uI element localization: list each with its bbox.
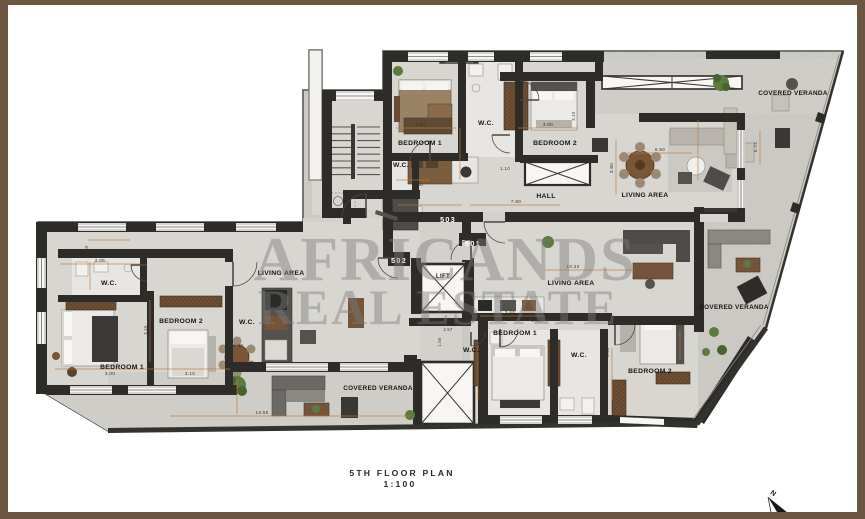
svg-text:COVERED VERANDA: COVERED VERANDA bbox=[343, 385, 413, 392]
svg-text:COVERED VERANDA: COVERED VERANDA bbox=[699, 304, 769, 311]
svg-text:W.C.: W.C. bbox=[101, 280, 117, 287]
svg-text:3.10: 3.10 bbox=[185, 371, 195, 376]
svg-text:REAL ESTATE: REAL ESTATE bbox=[258, 279, 619, 335]
svg-text:COVERED VERANDA: COVERED VERANDA bbox=[758, 90, 828, 97]
svg-text:BEDROOM 2: BEDROOM 2 bbox=[628, 368, 672, 375]
svg-text:1.80: 1.80 bbox=[413, 182, 423, 187]
svg-text:503: 503 bbox=[440, 215, 456, 224]
svg-text:BEDROOM 1: BEDROOM 1 bbox=[100, 364, 144, 371]
svg-text:BEDROOM 2: BEDROOM 2 bbox=[159, 318, 203, 325]
svg-text:3.10: 3.10 bbox=[571, 111, 576, 121]
svg-text:3.10: 3.10 bbox=[415, 122, 425, 127]
svg-text:HALL: HALL bbox=[536, 193, 555, 200]
svg-text:W.C.: W.C. bbox=[239, 319, 255, 326]
svg-text:3.00: 3.00 bbox=[105, 371, 115, 376]
svg-text:2.05: 2.05 bbox=[95, 258, 105, 263]
svg-text:6.50: 6.50 bbox=[655, 147, 665, 152]
svg-text:3.65: 3.65 bbox=[605, 347, 610, 357]
svg-text:3.15: 3.15 bbox=[143, 325, 148, 335]
svg-text:W.C.: W.C. bbox=[478, 120, 494, 127]
svg-text:BEDROOM 1: BEDROOM 1 bbox=[398, 140, 442, 147]
svg-text:3.00: 3.00 bbox=[543, 122, 553, 127]
svg-text:BEDROOM 2: BEDROOM 2 bbox=[533, 140, 577, 147]
svg-text:7.80: 7.80 bbox=[511, 199, 521, 204]
svg-text:W.C.: W.C. bbox=[393, 162, 409, 169]
svg-text:5.74: 5.74 bbox=[753, 142, 758, 152]
svg-text:1.40: 1.40 bbox=[84, 245, 89, 255]
svg-text:5TH FLOOR PLAN: 5TH FLOOR PLAN bbox=[349, 468, 454, 478]
svg-text:W.C.: W.C. bbox=[571, 352, 587, 359]
svg-text:13.55: 13.55 bbox=[256, 410, 269, 415]
svg-text:W.C.: W.C. bbox=[463, 347, 479, 354]
svg-text:1:100: 1:100 bbox=[384, 479, 417, 489]
svg-text:1.55: 1.55 bbox=[437, 337, 442, 347]
svg-text:LIVING AREA: LIVING AREA bbox=[622, 192, 669, 199]
svg-text:1.80: 1.80 bbox=[233, 343, 243, 348]
svg-text:1.10: 1.10 bbox=[500, 166, 510, 171]
svg-text:3.80: 3.80 bbox=[609, 163, 614, 173]
